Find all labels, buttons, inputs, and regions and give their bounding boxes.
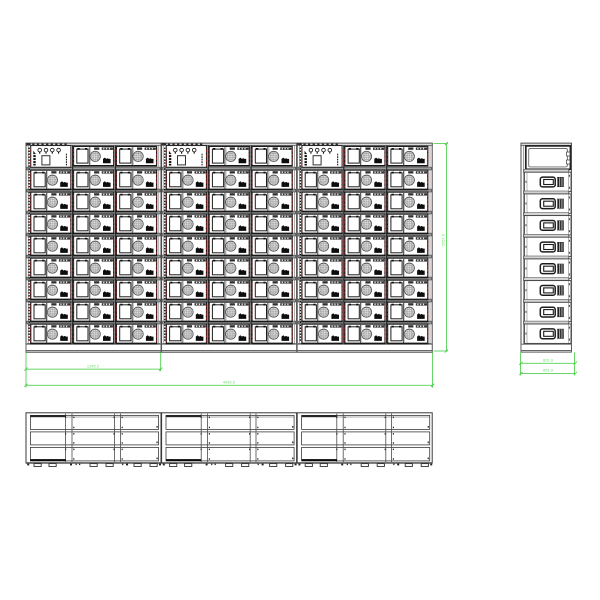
svg-text:1345.2: 1345.2 [87, 363, 100, 368]
svg-text:651.9: 651.9 [543, 368, 554, 373]
svg-text:4042.6: 4042.6 [223, 380, 236, 385]
svg-text:601.9: 601.9 [543, 357, 554, 362]
svg-text:2057.9: 2057.9 [441, 233, 446, 246]
